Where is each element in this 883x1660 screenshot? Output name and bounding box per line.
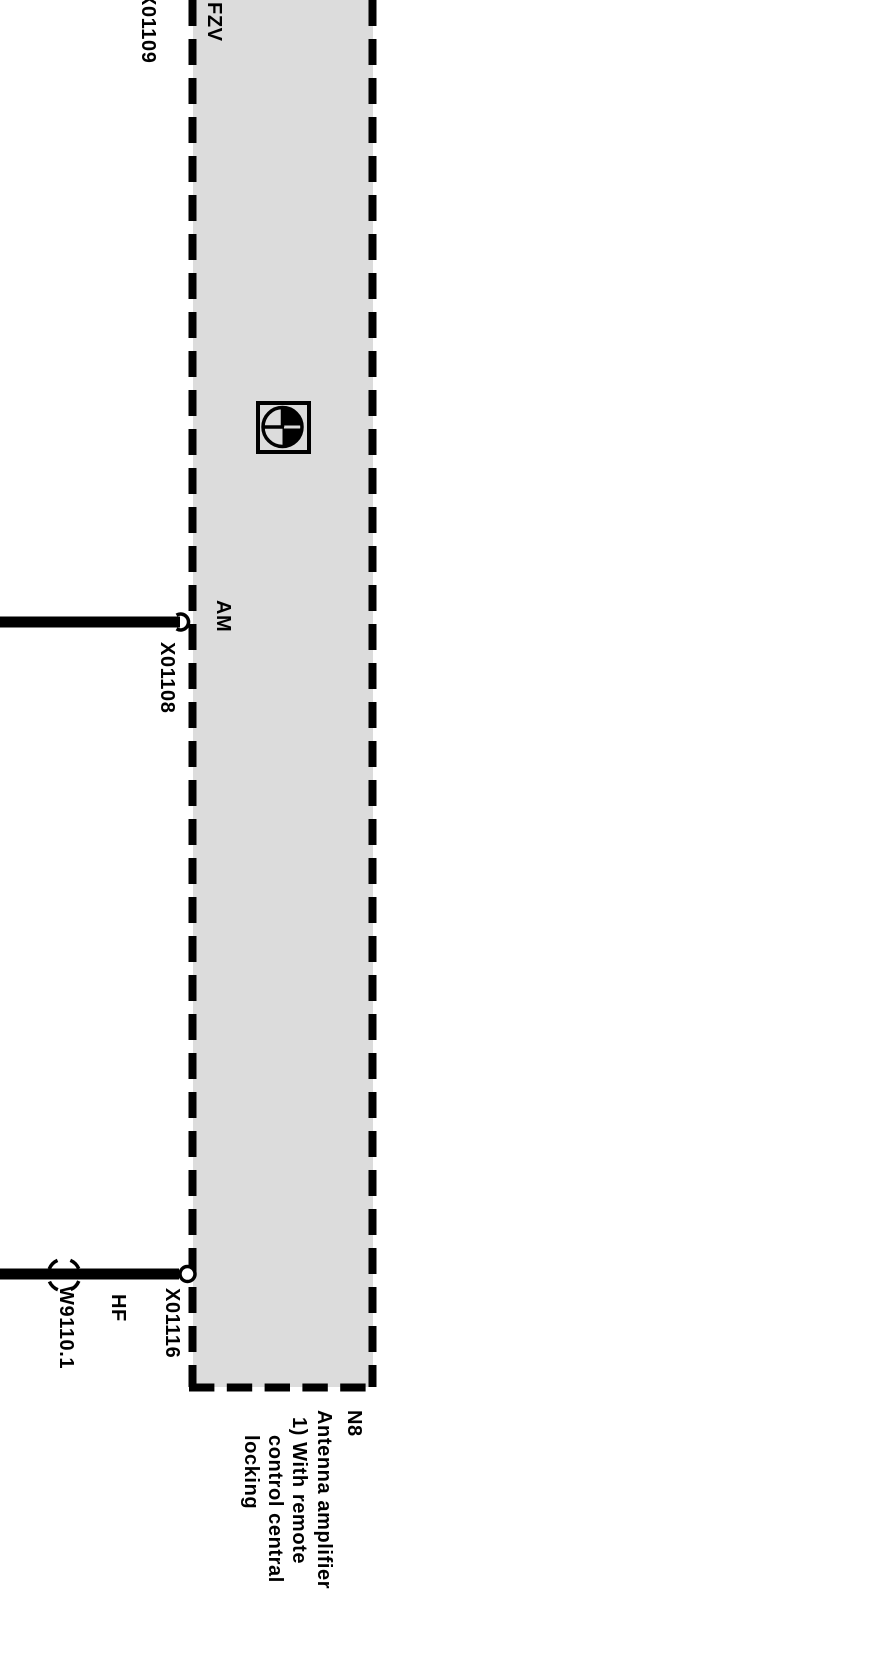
connector-label-x01109: X01109 <box>138 0 158 63</box>
signal-label-fzv: FZV <box>204 2 224 42</box>
legend-footnote-line-2: control central <box>265 1435 285 1583</box>
signal-label-am: AM <box>213 600 233 632</box>
legend-component-name: Antenna amplifier <box>314 1410 334 1589</box>
diagram-graphics <box>0 0 883 1660</box>
connector-label-x01108: X01108 <box>157 642 177 713</box>
wire-label-w9110-1: W9110.1 <box>56 1286 76 1369</box>
legend-footnote-line-3: locking <box>241 1435 261 1509</box>
wiring-diagram-page: FZV X01109 AM X01108 HF X01116 W9110.1 N… <box>0 0 883 1660</box>
connector-ring-hf-icon <box>180 1267 195 1282</box>
signal-label-hf: HF <box>108 1294 128 1322</box>
legend-component-code: N8 <box>344 1410 364 1437</box>
legend-footnote-line-1: 1) With remote <box>289 1417 309 1564</box>
connector-label-x01116: X01116 <box>162 1288 182 1358</box>
component-box <box>193 0 373 1387</box>
